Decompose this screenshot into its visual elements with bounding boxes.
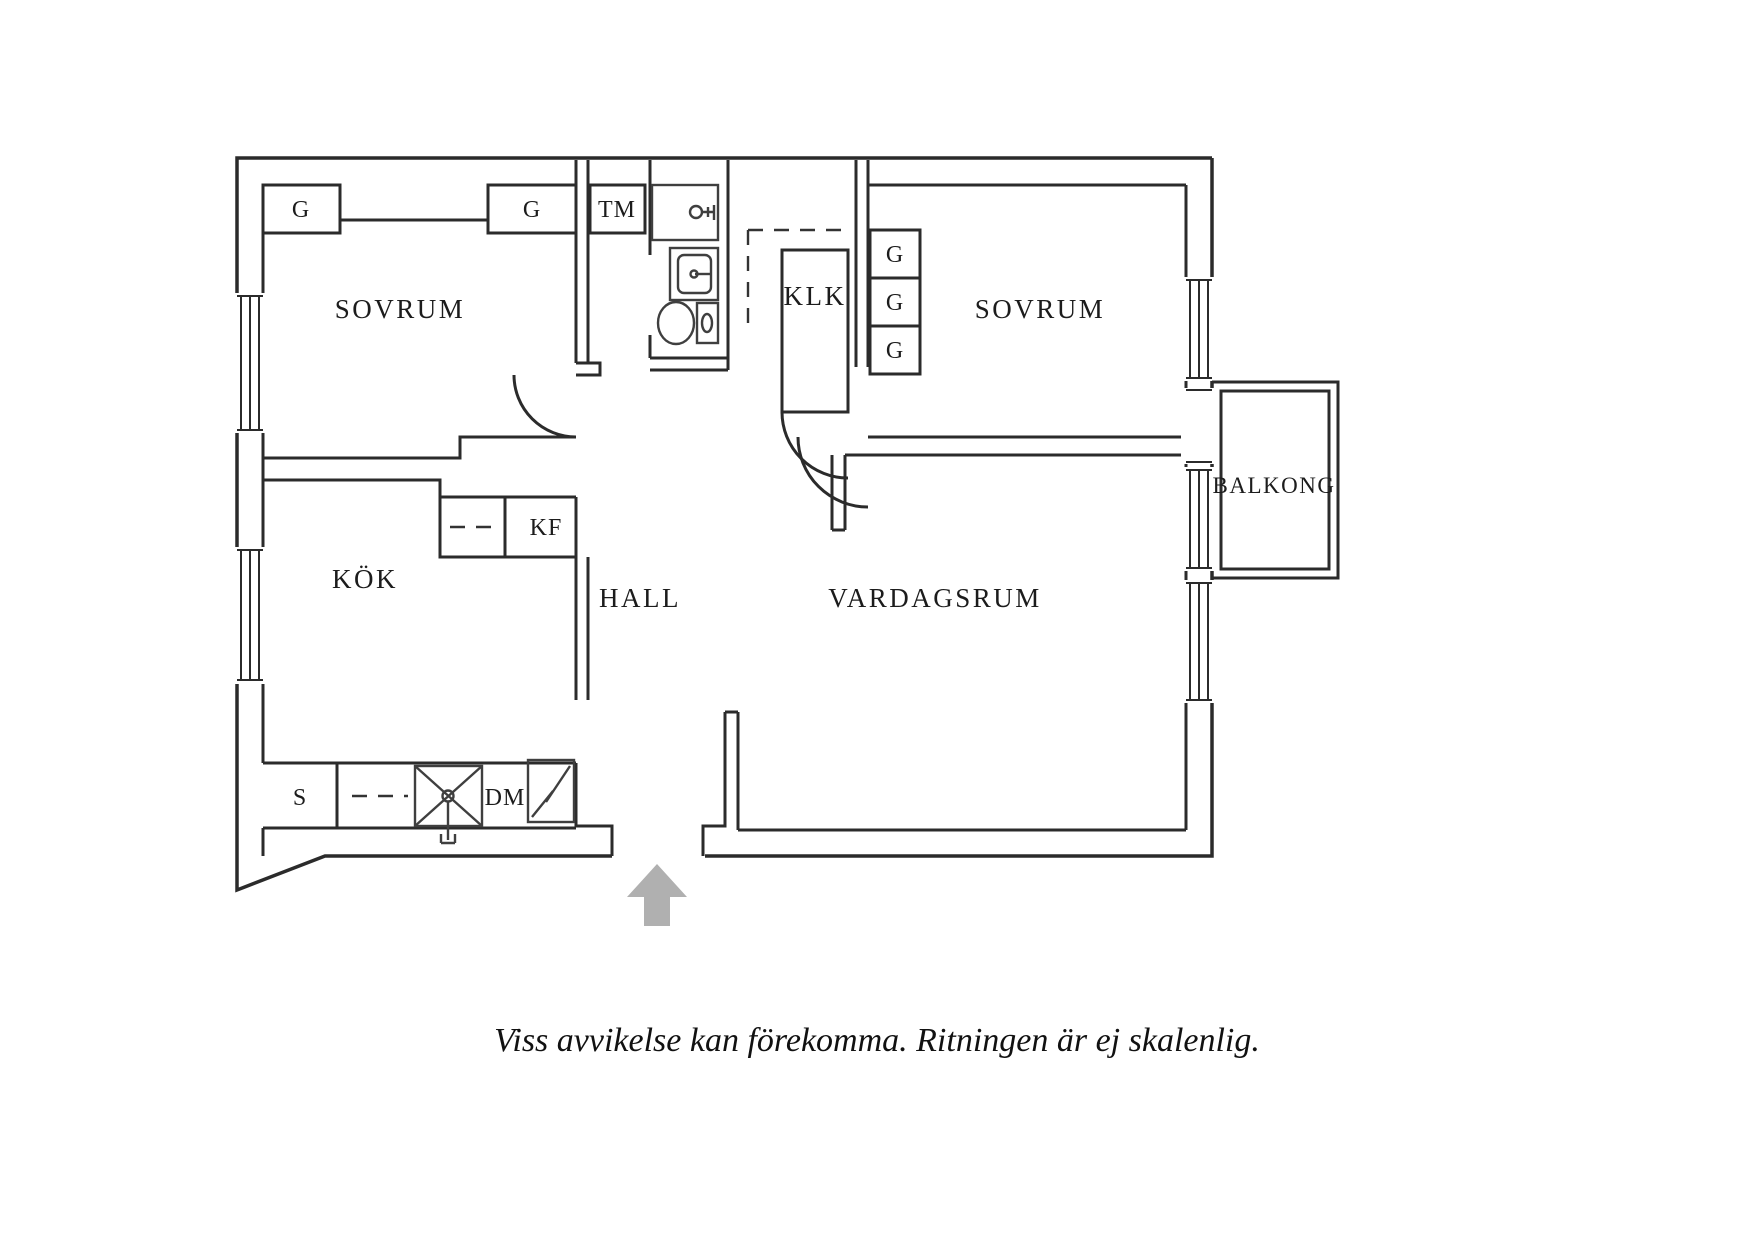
wardrobe-label-g5: G: [886, 338, 904, 364]
fixture-label-kf: KF: [530, 515, 563, 541]
room-label-sovrum-2: SOVRUM: [975, 294, 1106, 324]
sink-icon: [415, 766, 482, 843]
fixture-label-s: S: [293, 785, 307, 811]
window-balcony: [1186, 470, 1212, 568]
klk-door-arc: [782, 412, 848, 478]
entrance-arrow-icon: [627, 864, 687, 926]
room-label-vardagsrum: VARDAGSRUM: [828, 583, 1042, 613]
klk-closet: [748, 230, 850, 412]
wardrobe-label-g4: G: [886, 290, 904, 316]
room-label-kok: KÖK: [332, 564, 398, 594]
wardrobe-label-g3: G: [886, 242, 904, 268]
room-label-sovrum-1: SOVRUM: [335, 294, 466, 324]
bedroom1-door-arc: [514, 375, 576, 437]
wardrobe-label-g2: G: [523, 197, 541, 223]
room-label-klk: KLK: [784, 281, 847, 311]
bathroom-fixtures: [652, 185, 718, 344]
wardrobe-label-g1: G: [292, 197, 310, 223]
disclaimer-caption: Viss avvikelse kan förekomma. Ritningen …: [0, 1022, 1754, 1060]
wardrobe-boxes: [263, 185, 920, 374]
window-right-livingroom: [1186, 583, 1212, 700]
stove-icon: [528, 760, 574, 822]
window-right-bedroom: [1186, 280, 1212, 378]
room-label-balkong: BALKONG: [1213, 473, 1336, 498]
floor-plan-page: SOVRUM SOVRUM KÖK HALL VARDAGSRUM BALKON…: [0, 0, 1754, 1240]
window-left-bedroom: [237, 296, 263, 430]
toilet-icon: [658, 302, 718, 344]
fixture-label-tm: TM: [598, 197, 636, 223]
room-label-hall: HALL: [599, 583, 681, 613]
windows: [232, 277, 1217, 703]
washbasin-icon: [670, 248, 718, 300]
interior-walls: [263, 160, 1186, 856]
door-arcs: [514, 375, 868, 507]
faucet-icon: [690, 205, 714, 220]
fixture-label-dm: DM: [485, 785, 526, 811]
window-left-kitchen: [237, 550, 263, 680]
